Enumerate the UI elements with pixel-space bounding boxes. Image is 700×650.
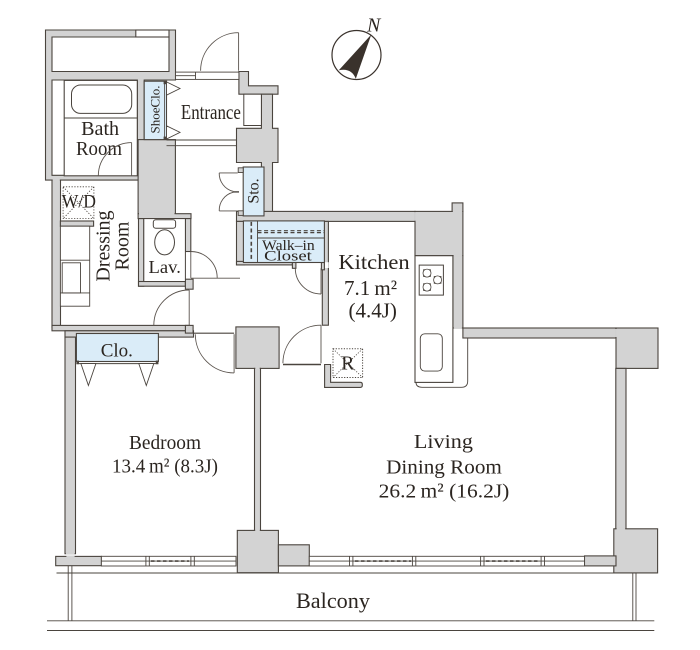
- svg-text:ShoeClo.: ShoeClo.: [147, 85, 162, 133]
- svg-text:26.2 m² (16.2J): 26.2 m² (16.2J): [379, 480, 510, 502]
- svg-text:13.4 m² (8.3J): 13.4 m² (8.3J): [112, 456, 218, 478]
- svg-text:Balcony: Balcony: [296, 588, 370, 613]
- svg-text:7.1 m²: 7.1 m²: [344, 276, 397, 300]
- svg-text:Lav.: Lav.: [149, 257, 181, 277]
- svg-text:Clo.: Clo.: [101, 340, 133, 361]
- svg-text:Sto.: Sto.: [246, 178, 263, 203]
- svg-text:Kitchen: Kitchen: [338, 250, 410, 274]
- svg-text:N: N: [366, 14, 382, 36]
- svg-text:(4.4J): (4.4J): [348, 299, 396, 323]
- svg-text:Room: Room: [76, 138, 122, 160]
- svg-text:Bedroom: Bedroom: [129, 432, 201, 454]
- svg-text:R: R: [341, 354, 354, 375]
- svg-text:Dining Room: Dining Room: [386, 456, 502, 478]
- svg-text:Bath: Bath: [81, 118, 119, 140]
- svg-text:Room: Room: [112, 221, 134, 270]
- svg-text:Closet: Closet: [264, 248, 312, 264]
- svg-text:Living: Living: [414, 431, 473, 453]
- svg-text:W/D: W/D: [62, 193, 96, 213]
- svg-text:Entrance: Entrance: [181, 100, 241, 124]
